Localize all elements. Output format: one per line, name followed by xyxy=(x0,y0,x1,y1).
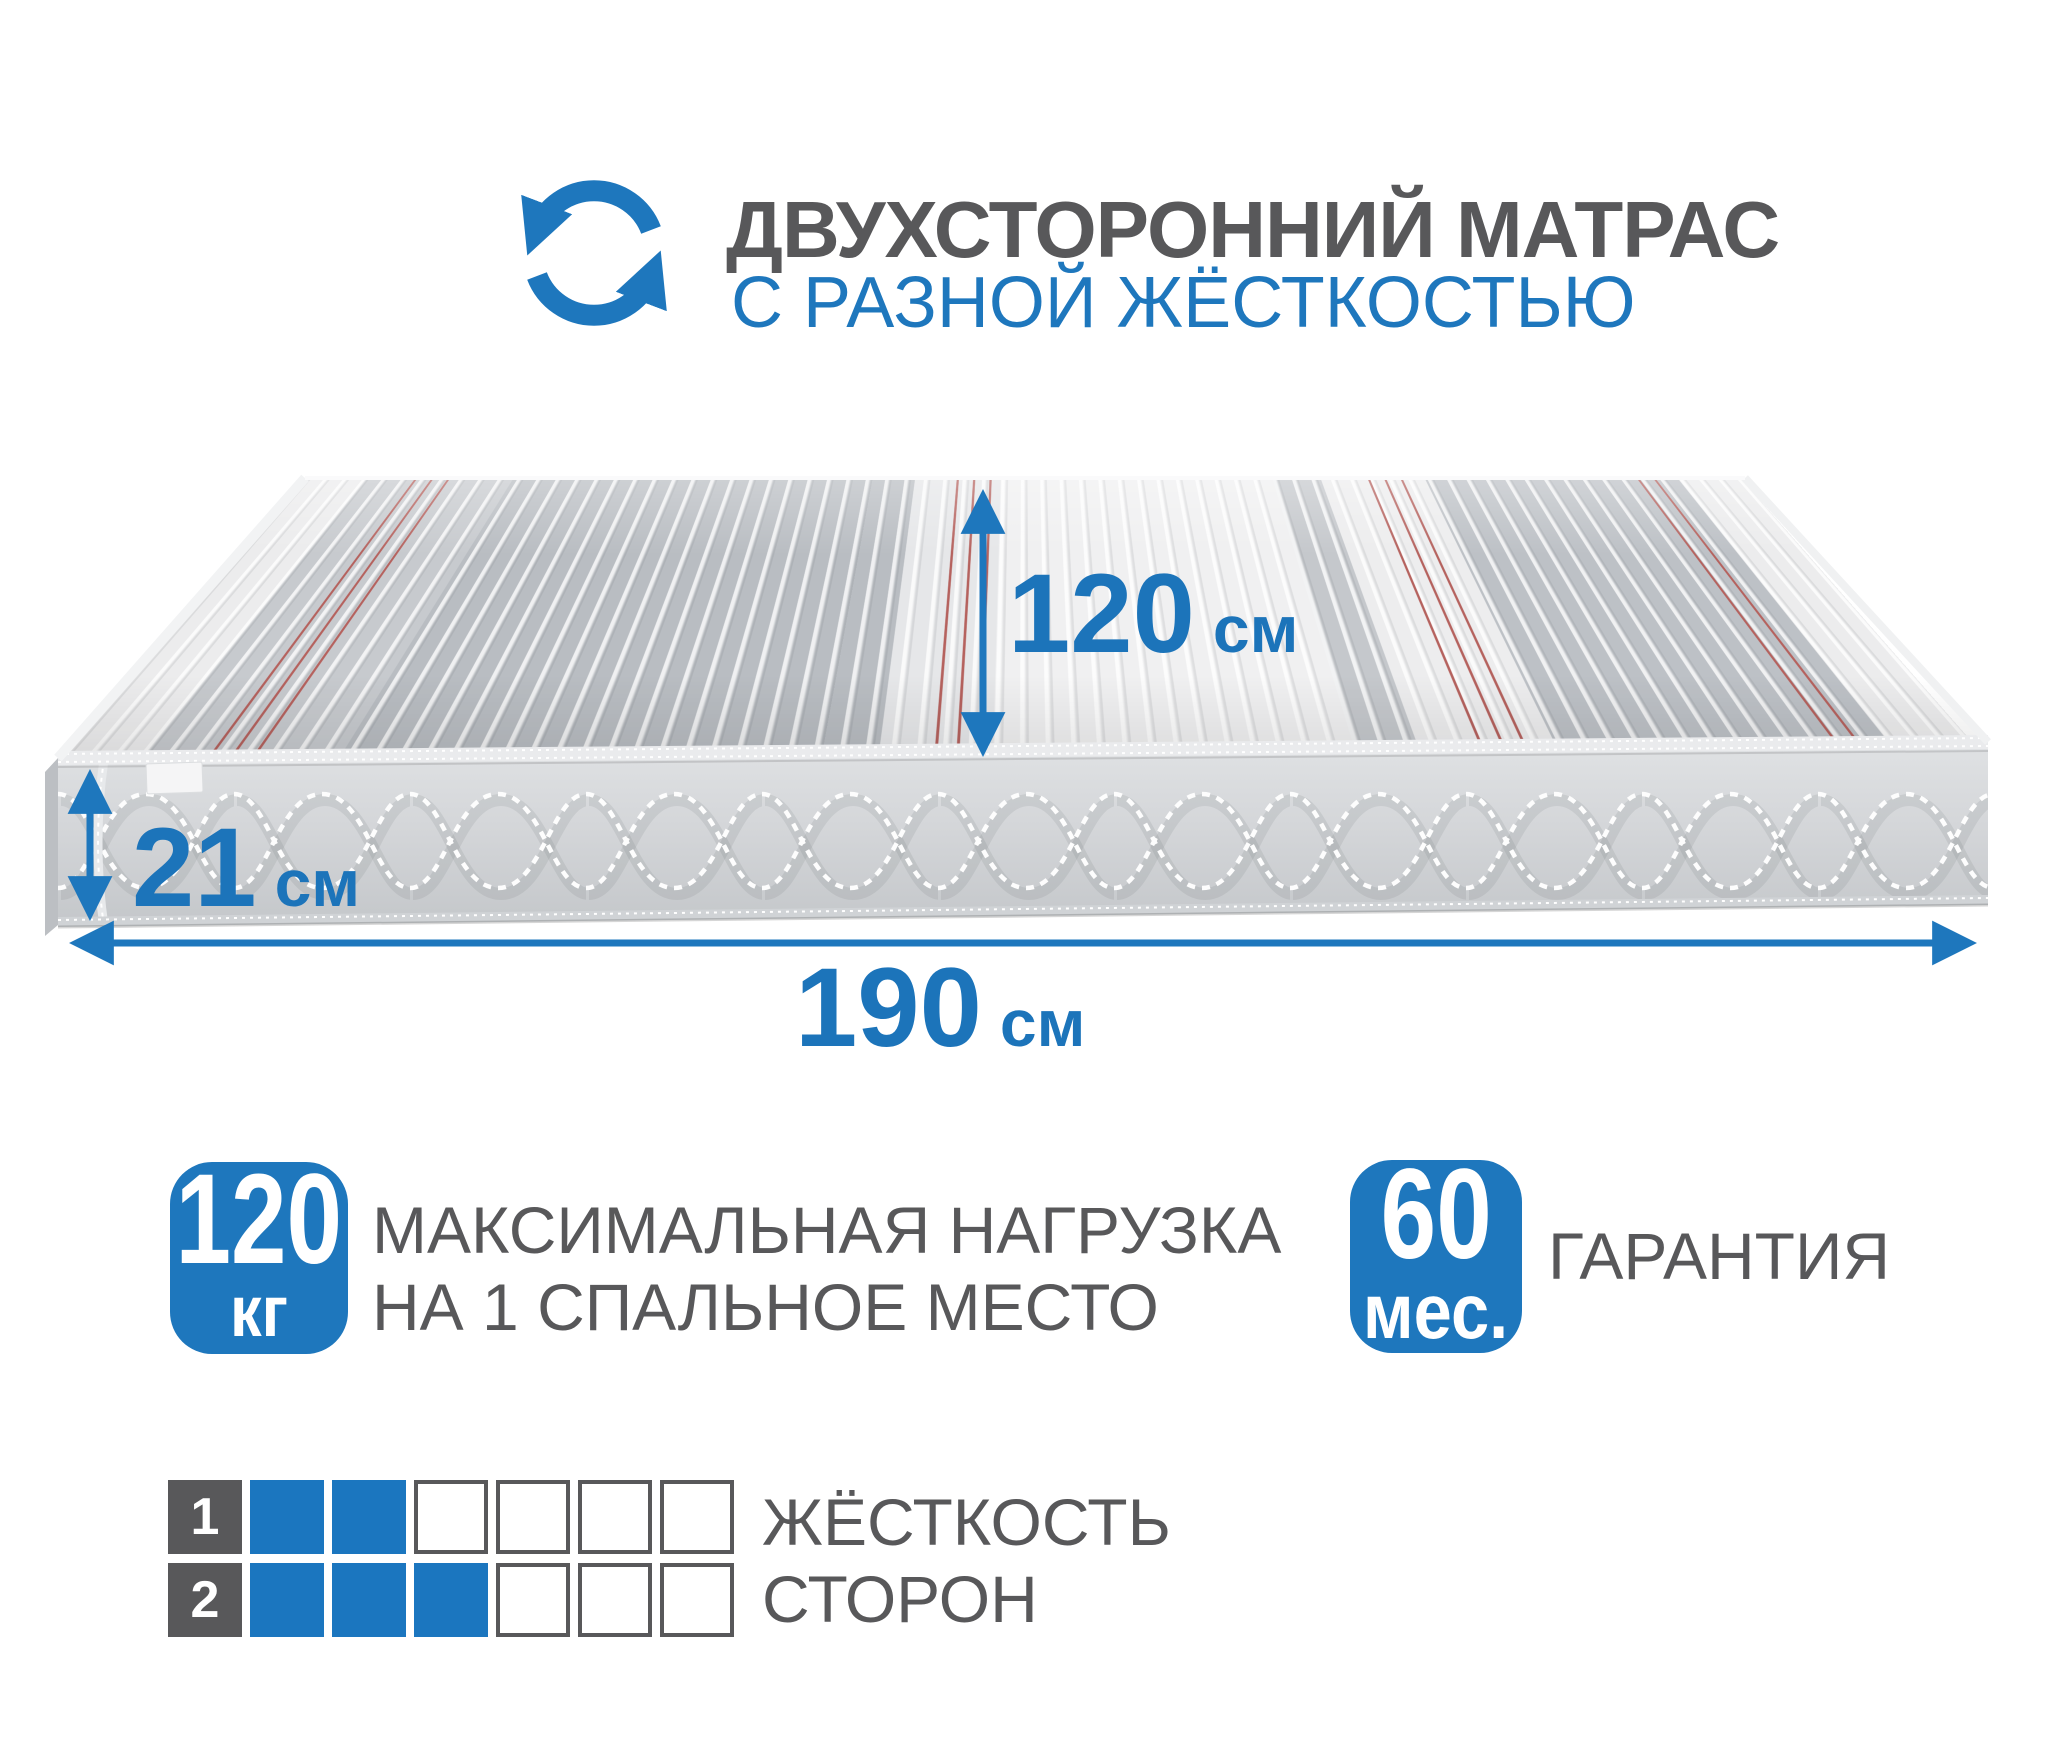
firmness-title-line1: ЖЁСТКОСТЬ xyxy=(762,1484,1171,1561)
firmness-cell-filled xyxy=(332,1563,406,1637)
length-value: 190 xyxy=(795,952,982,1064)
warranty-unit: мес. xyxy=(1363,1272,1508,1350)
firmness-title-line2: СТОРОН xyxy=(762,1561,1171,1638)
max-load-value: 120 xyxy=(176,1168,343,1273)
warranty-value: 60 xyxy=(1380,1163,1491,1268)
firmness-row-label: 1 xyxy=(168,1480,242,1554)
firmness-cell-empty xyxy=(578,1563,652,1637)
firmness-cell-filled xyxy=(250,1480,324,1554)
firmness-cell-filled xyxy=(250,1563,324,1637)
infographic-canvas: ДВУХСТОРОННИЙ МАТРАС С РАЗНОЙ ЖЁСТКОСТЬЮ xyxy=(0,0,2048,1757)
firmness-cell-empty xyxy=(496,1480,570,1554)
warranty-label: ГАРАНТИЯ xyxy=(1548,1160,1890,1353)
firmness-row: 1 xyxy=(168,1480,734,1554)
firmness-row-label: 2 xyxy=(168,1563,242,1637)
firmness-rows: 12 xyxy=(168,1480,734,1637)
mattress-left-face xyxy=(45,758,58,936)
max-load-unit: кг xyxy=(230,1276,288,1348)
length-dimension-label: 190 см xyxy=(795,952,1085,1064)
rotate-arrows-icon xyxy=(503,160,685,346)
height-value: 21 xyxy=(132,812,257,924)
firmness-row: 2 xyxy=(168,1563,734,1637)
firmness-cell-empty xyxy=(660,1563,734,1637)
height-dimension-label: 21 см xyxy=(132,812,360,924)
firmness-cell-filled xyxy=(332,1480,406,1554)
firmness-cell-filled xyxy=(414,1563,488,1637)
firmness-cell-empty xyxy=(660,1480,734,1554)
max-load-text-line2: НА 1 СПАЛЬНОЕ МЕСТО xyxy=(372,1269,1281,1346)
depth-unit: см xyxy=(1213,596,1299,662)
length-unit: см xyxy=(1000,990,1086,1056)
depth-dimension-label: 120 см xyxy=(1008,558,1298,670)
firmness-cell-empty xyxy=(578,1480,652,1554)
max-load-badge: 120 кг xyxy=(170,1162,348,1354)
firmness-cell-empty xyxy=(414,1480,488,1554)
max-load-text: МАКСИМАЛЬНАЯ НАГРУЗКА НА 1 СПАЛЬНОЕ МЕСТ… xyxy=(372,1192,1281,1346)
mattress-label-tag xyxy=(146,762,203,794)
mattress-left-edge xyxy=(58,478,305,758)
mattress-right-edge xyxy=(1745,478,1988,742)
height-unit: см xyxy=(275,850,361,916)
firmness-title: ЖЁСТКОСТЬ СТОРОН xyxy=(762,1484,1171,1638)
depth-value: 120 xyxy=(1008,558,1195,670)
warranty-badge: 60 мес. xyxy=(1350,1160,1522,1353)
page-subtitle: С РАЗНОЙ ЖЁСТКОСТЬЮ xyxy=(731,262,1636,344)
max-load-text-line1: МАКСИМАЛЬНАЯ НАГРУЗКА xyxy=(372,1192,1281,1269)
firmness-cell-empty xyxy=(496,1563,570,1637)
